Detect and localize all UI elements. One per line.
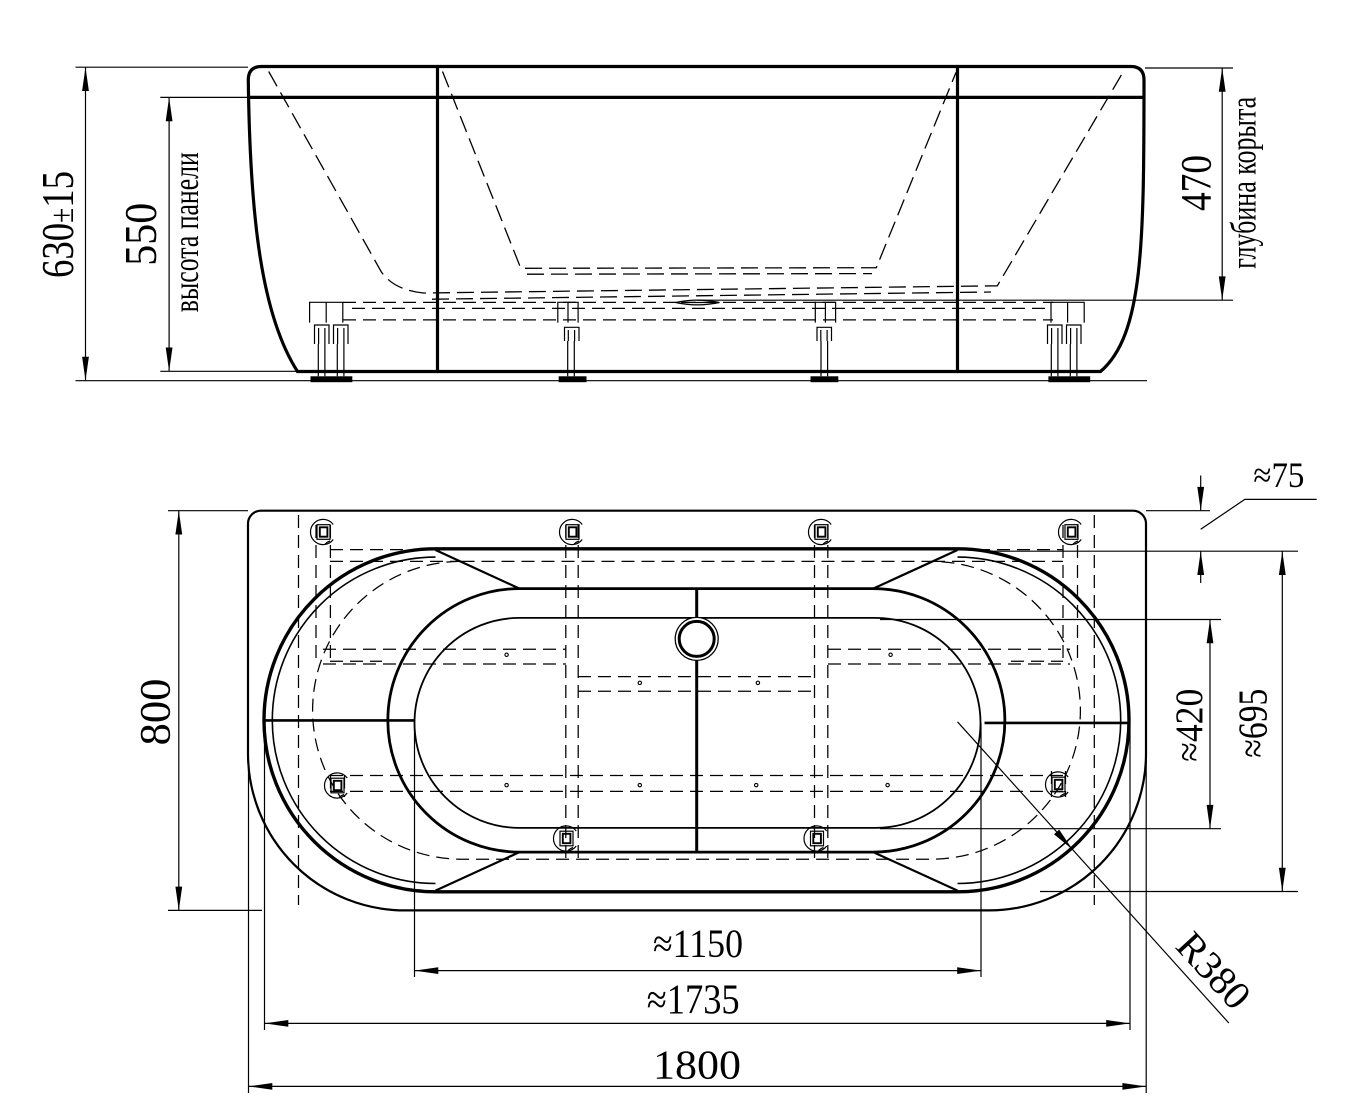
svg-text:630±15: 630±15: [32, 171, 83, 278]
svg-text:≈1735: ≈1735: [647, 978, 740, 1024]
svg-text:1800: 1800: [653, 1042, 741, 1088]
svg-text:высота панели: высота панели: [166, 152, 206, 312]
svg-text:≈420: ≈420: [1168, 689, 1211, 762]
svg-text:470: 470: [1173, 155, 1220, 211]
svg-text:глубина корыта: глубина корыта: [1224, 97, 1264, 269]
svg-text:800: 800: [132, 679, 179, 746]
svg-text:≈1150: ≈1150: [653, 921, 743, 966]
svg-text:≈75: ≈75: [1253, 455, 1304, 495]
svg-text:≈695: ≈695: [1230, 689, 1276, 758]
svg-text:550: 550: [116, 203, 166, 266]
